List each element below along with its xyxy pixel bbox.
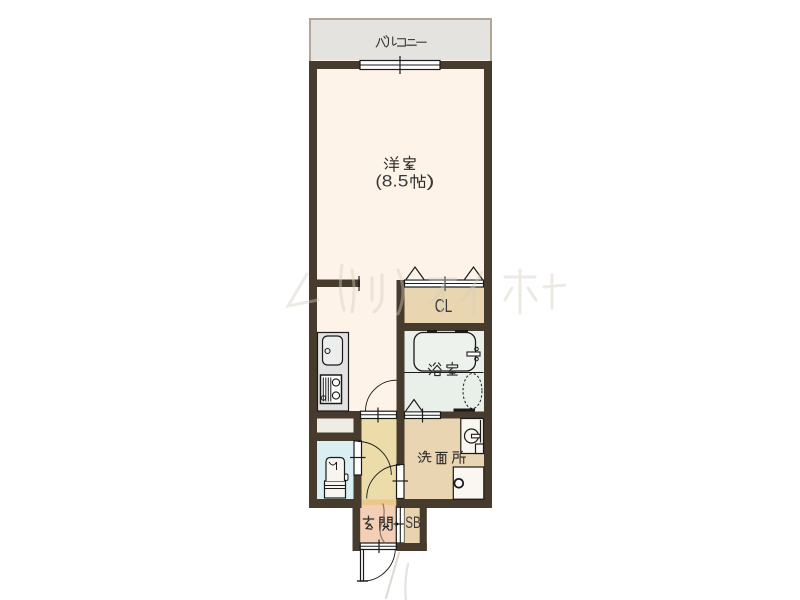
svg-text:): ) xyxy=(427,172,435,191)
svg-text:(8.5: (8.5 xyxy=(375,172,408,191)
svg-text:SB: SB xyxy=(405,513,420,532)
